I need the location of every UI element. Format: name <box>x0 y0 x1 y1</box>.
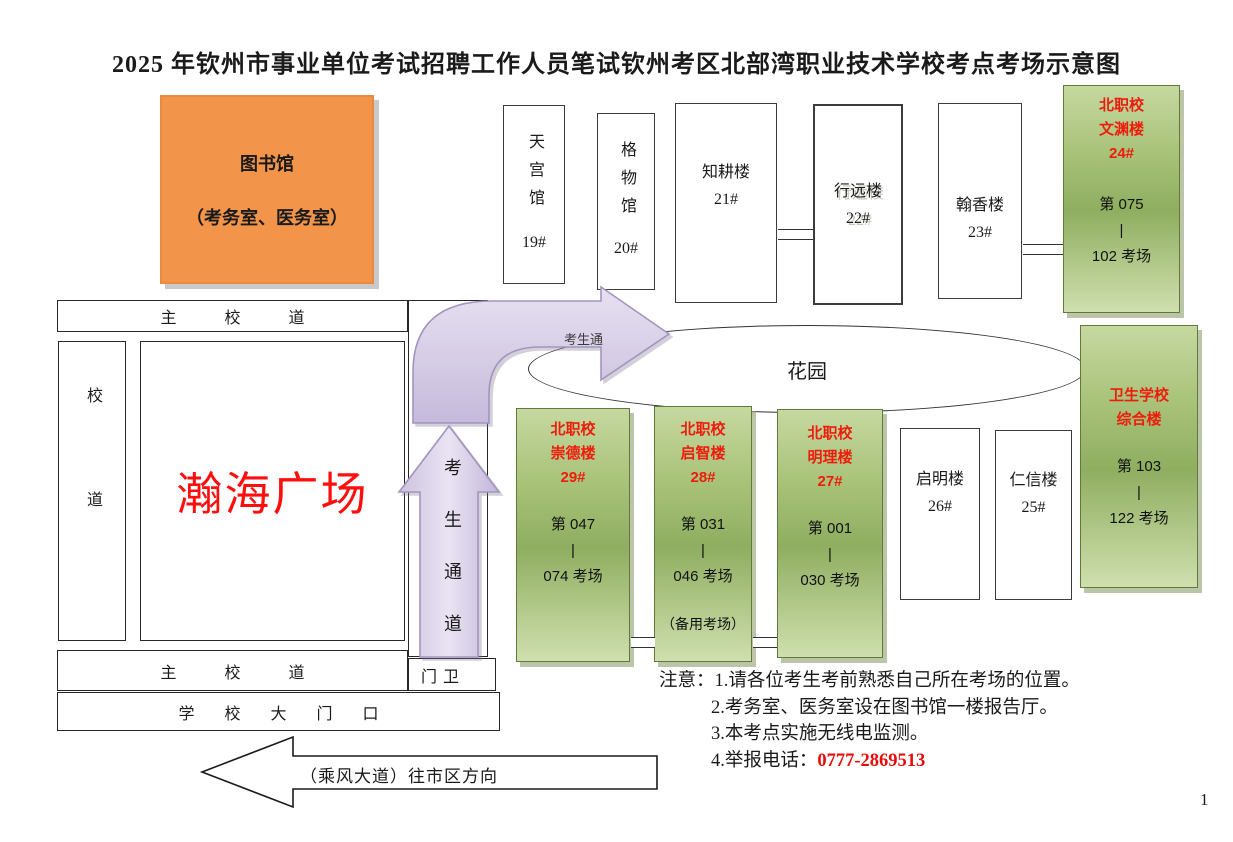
library-subtitle: （考务室、医务室） <box>186 204 348 230</box>
room-range-end: 102 考场 <box>1064 244 1179 270</box>
candidate-passage-label: 考生通道 <box>439 458 465 666</box>
building-name: 明理楼 <box>778 446 882 470</box>
building-qiming: 启明楼 26# <box>900 428 980 600</box>
garden-ellipse: 花园 <box>528 325 1086 413</box>
room-range-start: 第 031 <box>655 512 751 538</box>
school-gate-label: 学校大门口 <box>148 700 408 724</box>
room-range-end: 046 考场 <box>655 564 751 590</box>
building-name: 格物馆 <box>618 141 634 225</box>
building-name: 启智楼 <box>655 442 751 466</box>
walkway-connector <box>778 229 813 240</box>
building-name: 卫生学校 <box>1081 384 1197 408</box>
building-name: 综合楼 <box>1081 408 1197 432</box>
room-range-end: 122 考场 <box>1081 506 1197 532</box>
library-name: 图书馆 <box>240 150 294 176</box>
note-line-4: 4.举报电话：0777-2869513 <box>711 748 1080 775</box>
road-label: 主校道 <box>112 304 352 328</box>
candidate-passage-bent-label: 考生通 <box>564 329 603 348</box>
building-number: 27# <box>778 470 882 494</box>
walkway-connector <box>753 637 777 648</box>
building-zhigeng: 知耕楼 21# <box>675 103 777 303</box>
walkway-connector <box>631 637 655 648</box>
road-label: 主校道 <box>112 659 352 683</box>
building-number: 25# <box>1022 494 1046 521</box>
building-number: 21# <box>714 186 738 213</box>
note-line-1: 注意：1.请各位考生考前熟悉自己所在考场的位置。 <box>659 668 1080 695</box>
building-name: 文渊楼 <box>1064 118 1179 142</box>
building-name: 仁信楼 <box>1009 467 1057 494</box>
building-name: 北职校 <box>778 422 882 446</box>
school-gate-box: 学校大门口 <box>57 692 500 731</box>
walkway-connector <box>1023 244 1063 255</box>
title-part2: 钦州考区北部湾职业技术学校考点考场示意图 <box>621 51 1121 78</box>
exam-venue-map: 2025 年钦州市事业单位考试招聘工作人员笔试钦州考区北部湾职业技术学校考点考场… <box>0 0 1233 842</box>
building-hanxiang: 翰香楼 23# <box>938 103 1022 299</box>
building-number: 19# <box>522 229 546 256</box>
building-name: 启明楼 <box>916 466 964 493</box>
room-range-end: 074 考场 <box>517 564 629 590</box>
building-wenyuan: 北职校 文渊楼 24# 第 075 | 102 考场 <box>1063 85 1180 313</box>
building-name: 知耕楼 <box>702 159 750 186</box>
note-text: 1.请各位考生考前熟悉自己所在考场的位置。 <box>715 671 1080 691</box>
notes-block: 注意：1.请各位考生考前熟悉自己所在考场的位置。 2.考务室、医务室设在图书馆一… <box>659 668 1080 774</box>
report-phone-number: 0777-2869513 <box>817 751 925 771</box>
road-campus: 校道 <box>58 341 126 641</box>
room-range-start: 第 047 <box>517 512 629 538</box>
room-range-start: 第 103 <box>1081 454 1197 480</box>
building-number: 22# <box>846 205 870 232</box>
room-range-start: 第 001 <box>778 516 882 542</box>
road-main-top: 主校道 <box>57 300 408 332</box>
hanhai-plaza: 瀚海广场 <box>140 341 405 641</box>
building-name: 行远楼 <box>834 178 882 205</box>
page-number: 1 <box>1200 790 1209 810</box>
building-number: 28# <box>655 466 751 490</box>
building-name: 天宫馆 <box>526 133 542 217</box>
title-part1: 2025 年钦州市事业单位考试招聘工作人员笔试 <box>112 52 621 78</box>
building-number: 26# <box>928 493 952 520</box>
avenue-label: （乘风大道）往市区方向 <box>300 762 498 787</box>
building-name: 翰香楼 <box>956 192 1004 219</box>
road-label: 校道 <box>84 387 100 595</box>
building-name: 北职校 <box>1064 94 1179 118</box>
building-number: 24# <box>1064 142 1179 166</box>
building-qizhi: 北职校 启智楼 28# 第 031 | 046 考场 （备用考场） <box>654 406 752 662</box>
building-number: 29# <box>517 466 629 490</box>
building-number: 20# <box>614 235 638 262</box>
building-tiangong: 天宫馆 19# <box>503 105 565 284</box>
note-text: 4.举报电话： <box>711 751 817 771</box>
plaza-label: 瀚海广场 <box>177 458 369 524</box>
building-library: 图书馆 （考务室、医务室） <box>160 95 374 284</box>
room-range-bar: | <box>1081 480 1197 506</box>
building-name: 北职校 <box>655 418 751 442</box>
building-gewu: 格物馆 20# <box>597 113 655 290</box>
building-chongde: 北职校 崇德楼 29# 第 047 | 074 考场 <box>516 408 630 662</box>
room-range-bar: | <box>655 538 751 564</box>
gate-guard-label: 门卫 <box>421 663 465 687</box>
building-renxin: 仁信楼 25# <box>995 430 1072 600</box>
building-name: 崇德楼 <box>517 442 629 466</box>
room-range-end: 030 考场 <box>778 568 882 594</box>
building-weisheng: 卫生学校 综合楼 第 103 | 122 考场 <box>1080 325 1198 588</box>
building-xingyuan: 行远楼 22# <box>813 104 903 305</box>
note-line-3: 3.本考点实施无线电监测。 <box>711 721 1080 748</box>
note-line-2: 2.考务室、医务室设在图书馆一楼报告厅。 <box>711 695 1080 722</box>
room-range-bar: | <box>778 542 882 568</box>
room-range-bar: | <box>1064 218 1179 244</box>
building-number: 23# <box>968 219 992 246</box>
garden-label: 花园 <box>787 355 827 384</box>
building-mingli: 北职校 明理楼 27# 第 001 | 030 考场 <box>777 409 883 658</box>
room-range-start: 第 075 <box>1064 192 1179 218</box>
backup-room-note: （备用考场） <box>655 614 751 634</box>
road-main-bottom: 主校道 <box>57 650 408 691</box>
notes-label: 注意： <box>659 671 715 691</box>
room-range-bar: | <box>517 538 629 564</box>
page-title: 2025 年钦州市事业单位考试招聘工作人员笔试钦州考区北部湾职业技术学校考点考场… <box>0 44 1233 79</box>
building-name: 北职校 <box>517 418 629 442</box>
